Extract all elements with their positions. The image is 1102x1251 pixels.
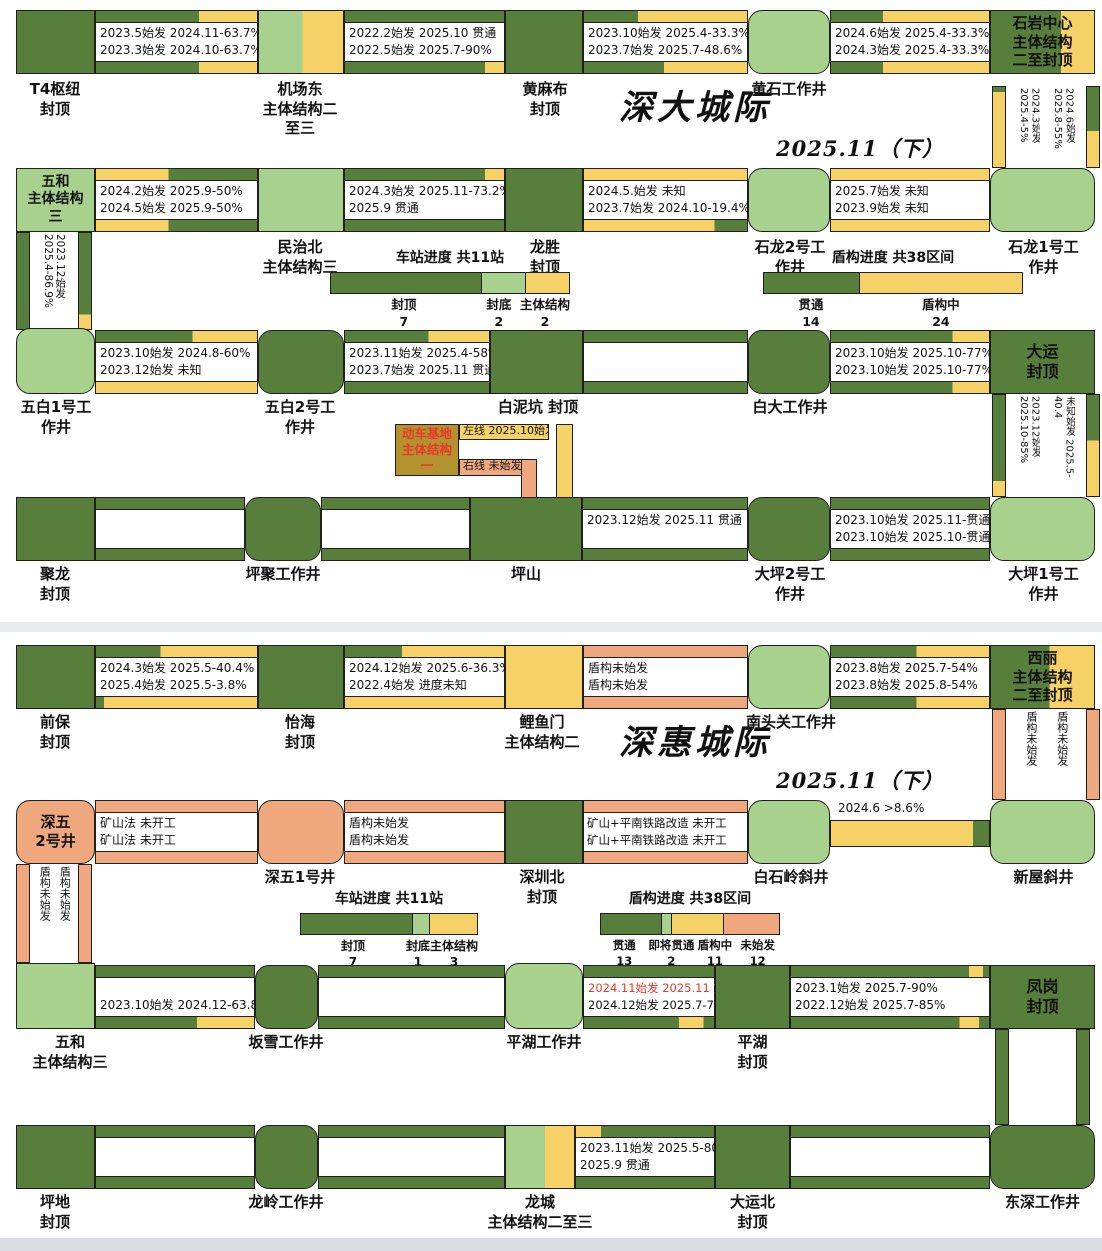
node-label-pingshan: 坪山 <box>466 565 586 585</box>
node-label-banxue: 坂雪工作井 <box>216 1033 356 1053</box>
segment-label-line: 2023.8始发 2025.7-54% <box>835 660 985 677</box>
legend-item-name: 盾构中 <box>698 938 733 954</box>
progress-bar <box>95 645 258 658</box>
segment-h3: 2023.11始发 2025.5-80%2025.9 贯通 <box>575 1125 715 1189</box>
progress-bar <box>583 696 748 709</box>
legend-swatch-through <box>601 914 661 934</box>
legend-item-count: 24 <box>932 314 949 331</box>
legend-sd-shield: 盾构进度 共38区间 贯通14 盾构中24 <box>763 247 1023 331</box>
progress-bar <box>344 696 505 709</box>
progress-bar <box>321 548 470 561</box>
segment-label-line: 2022.4始发 进度未知 <box>349 677 500 694</box>
segment-label-line: 2023.10始发 2025.10-77% <box>835 362 985 379</box>
progress-bar <box>344 851 505 864</box>
segment-c2: 2023.11始发 2025.4-58%2023.7始发 2025.11 贯通 <box>344 330 490 394</box>
segment-label-line: 2024.3始发 2025.5-40.4% <box>100 660 253 677</box>
legend-sh-station: 车站进度 共11站 封顶7 封底1 主体结构3 <box>300 888 478 970</box>
segment-d3: 2023.12始发 2025.11 贯通 <box>582 497 748 561</box>
node-label-baida: 白大工作井 <box>720 398 860 418</box>
progress-bar <box>16 864 30 963</box>
segment-c4: 2023.10始发 2025.10-77%2023.10始发 2025.10-7… <box>830 330 990 394</box>
segment-g3: 2024.11始发 2025.11 贯通2024.12始发 2025.7-70% <box>583 965 715 1029</box>
construction-progress-diagram: 2023.5始发 2024.11-63.7%2023.3始发 2024.10-6… <box>0 0 1102 1251</box>
segment-label-line: 2022.12始发 2025.7-85% <box>795 997 985 1014</box>
segment-label-line: 2023.8始发 2025.8-54% <box>835 677 985 694</box>
segment-label-line: 2024.6 >8.6% <box>830 800 990 817</box>
node-banxue-shaft <box>255 965 318 1029</box>
node-label-dongshen: 东深工作井 <box>980 1193 1102 1213</box>
node-baishiling-shaft <box>748 800 830 864</box>
segment-e4: 2023.8始发 2025.7-54%2023.8始发 2025.8-54% <box>830 645 990 709</box>
vertical-segment-v4: 盾构未始发 盾构未始发 <box>992 709 1100 800</box>
progress-bar <box>583 61 748 74</box>
node-label-pinghu-shaft: 平湖工作井 <box>454 1033 634 1053</box>
progress-bar <box>583 330 748 343</box>
segment-label-line: 未知始发 2025.5-40.4 <box>1052 394 1075 497</box>
legend-item-name: 未始发 <box>740 938 775 954</box>
legend-swatch-topped <box>331 273 481 293</box>
segment-label-line: 2024.11始发 2025.11 贯通 <box>588 980 710 997</box>
segment-b1: 2024.2始发 2025.9-50%2024.5始发 2025.9-50% <box>95 168 258 232</box>
segment-label-line: 盾构未始发 <box>588 660 743 677</box>
segment-label-line: 盾构未始发 <box>1024 709 1037 800</box>
line-date-shenhui: 2025.11（下） <box>755 765 965 795</box>
legend-item-count: 7 <box>400 314 409 331</box>
segment-label-line: 2024.3始发 2025.11-73.2% <box>349 183 500 200</box>
segment-b3: 2024.5.始发 未知2023.7始发 2024.10-19.4% <box>583 168 748 232</box>
progress-bar <box>583 168 748 181</box>
legend-item-name: 盾构中 <box>922 297 960 314</box>
node-minzhibei <box>258 168 344 232</box>
progress-bar <box>583 965 715 978</box>
node-julong <box>16 497 95 561</box>
legend-item-count: 14 <box>802 314 819 331</box>
progress-bar <box>583 381 748 394</box>
legend-item-name: 封底 <box>406 938 430 954</box>
line-title-shenhui: 深惠城际 <box>585 715 805 764</box>
node-pinghu-station <box>715 965 790 1029</box>
progress-bar <box>992 394 1006 497</box>
progress-bar <box>95 548 245 561</box>
node-dongshen-shaft <box>990 1125 1095 1189</box>
progress-bar <box>95 168 258 181</box>
progress-bar <box>1086 709 1100 800</box>
legend-item-name: 主体结构 <box>520 297 570 314</box>
legend-title: 盾构进度 共38区间 <box>763 247 1023 267</box>
segment-label-line: 2025.9 贯通 <box>349 200 500 217</box>
segment-label-line: 2023.10始发 2024.12-63.8% <box>100 997 250 1014</box>
legend-item-name: 贯通 <box>798 297 823 314</box>
progress-bar <box>95 1125 255 1138</box>
segment-g2 <box>318 965 505 1029</box>
node-label-pingdi: 坪地 封顶 <box>0 1193 110 1232</box>
segment-label-line: 2024.3始发 2025.4-33.3% <box>835 42 985 59</box>
progress-bar <box>344 330 490 343</box>
progress-bar <box>582 548 748 561</box>
segment-h4 <box>790 1125 990 1189</box>
segment-d4: 2023.10始发 2025.11-贯通2023.10始发 2025.10-贯通 <box>830 497 990 561</box>
progress-bar <box>95 61 258 74</box>
legend-title: 车站进度 共11站 <box>300 888 478 908</box>
segment-label-line: 盾构未始发 <box>349 832 500 849</box>
progress-bar <box>790 1176 990 1189</box>
segment-g4: 2023.1始发 2025.7-90%2022.12始发 2025.7-85% <box>790 965 990 1029</box>
node-pingshan <box>470 497 582 561</box>
legend-bar <box>763 272 1023 294</box>
progress-bar <box>575 1125 715 1138</box>
node-nantouguan-shaft <box>748 645 830 709</box>
segment-label-line: 2023.10始发 2025.10-贯通 <box>835 529 985 546</box>
node-huangshi-shaft <box>748 10 830 74</box>
segment-a2: 2022.2始发 2025.10 贯通2022.5始发 2025.7-90% <box>344 10 505 74</box>
progress-bar <box>344 381 490 394</box>
section-divider <box>0 622 1102 632</box>
segment-label-line: 2023.7始发 2025.7-48.6% <box>588 42 743 59</box>
progress-bar <box>318 965 505 978</box>
legend-bar <box>300 913 478 935</box>
progress-bar <box>992 709 1006 800</box>
node-label-t4: T4枢纽 封顶 <box>0 80 110 119</box>
legend-swatch-boring <box>859 273 1022 293</box>
segment-h2 <box>318 1125 505 1189</box>
legend-swatch-topped <box>301 914 412 934</box>
segment-label-line: 矿山+平南铁路改造 未开工 <box>587 815 744 832</box>
node-shilong2-shaft <box>748 168 830 232</box>
node-longcheng <box>505 1125 575 1189</box>
progress-bar <box>78 232 92 330</box>
segment-label-line: 盾构未始发 <box>58 864 71 963</box>
progress-bar <box>344 168 505 181</box>
progress-bar <box>830 548 990 561</box>
node-wubai1-shaft <box>16 328 95 394</box>
progress-bar <box>95 330 258 343</box>
progress-bar <box>95 851 258 864</box>
progress-bar <box>95 497 245 510</box>
node-label-pingju: 坪聚工作井 <box>213 565 353 585</box>
legend-sh-shield: 盾构进度 共38区间 贯通13 即将贯通2 盾构中11 未始发12 <box>600 888 780 969</box>
progress-bar <box>318 1016 505 1029</box>
node-pinghu-shaft <box>505 963 583 1029</box>
segment-label-line: 2025.9 贯通 <box>580 1157 710 1174</box>
segment-label-line: 2025.4始发 2025.5-3.8% <box>100 677 253 694</box>
segment-label-line: 2023.1始发 2025.7-90% <box>795 980 985 997</box>
node-label-xinwu: 新屋斜井 <box>985 868 1102 888</box>
segment-label-line: 2024.5始发 2025.9-50% <box>100 200 253 217</box>
segment-d2 <box>321 497 470 561</box>
progress-bar <box>344 10 505 23</box>
segment-label-line: 2023.10始发 2025.10-77% <box>835 345 985 362</box>
progress-bar <box>95 219 258 232</box>
node-label-julong: 聚龙 封顶 <box>0 565 110 604</box>
segment-label-line: 2023.9始发 未知 <box>835 200 985 217</box>
progress-bar <box>95 1016 255 1029</box>
legend-swatch-main-structure <box>429 914 477 934</box>
segment-e2: 2024.12始发 2025.6-36.3%2022.4始发 进度未知 <box>344 645 505 709</box>
segment-label-line: 矿山法 未开工 <box>100 832 253 849</box>
node-fenggang: 凤岗 封顶 <box>990 965 1095 1029</box>
segment-h1 <box>95 1125 255 1189</box>
node-label-qianbao: 前保 封顶 <box>0 713 110 752</box>
segment-c1: 2023.10始发 2024.8-60%2023.12始发 未知 <box>95 330 258 394</box>
progress-bar <box>830 61 990 74</box>
progress-bar <box>344 645 505 658</box>
progress-bar <box>583 800 748 813</box>
segment-label-line: 2024.2始发 2025.9-50% <box>100 183 253 200</box>
segment-e3: 盾构未始发盾构未始发 <box>583 645 748 709</box>
progress-bar <box>95 10 258 23</box>
progress-bar <box>992 86 1006 168</box>
segment-label-line: 2023.10始发 2025.4-33.3% <box>588 25 743 42</box>
node-label-wubai2: 五白2号工 作井 <box>230 398 370 437</box>
node-bainikeng <box>490 330 583 394</box>
node-huangmabu <box>505 10 583 74</box>
segment-a1: 2023.5始发 2024.11-63.7%2023.3始发 2024.10-6… <box>95 10 258 74</box>
segment-f3: 矿山+平南铁路改造 未开工矿山+平南铁路改造 未开工 <box>583 800 748 864</box>
legend-item-name: 主体结构 <box>430 938 478 954</box>
segment-label-line: 2024.6始发 2025.4-33.3% <box>835 25 985 42</box>
progress-bar <box>583 851 748 864</box>
progress-bar <box>95 381 258 394</box>
node-yihai <box>258 645 344 709</box>
legend-title: 盾构进度 共38区间 <box>600 888 780 908</box>
progress-bar <box>830 381 990 394</box>
progress-bar <box>830 497 990 510</box>
node-label-longling: 龙岭工作井 <box>216 1193 356 1213</box>
segment-label-line: 2024.5.始发 未知 <box>588 183 743 200</box>
progress-bar <box>95 1176 255 1189</box>
segment-label-line: 2023.3始发 2024.10-63.7% <box>100 42 253 59</box>
segment-label-line: 盾构未始发 <box>1055 709 1068 800</box>
legend-swatch-main-structure <box>525 273 569 293</box>
node-label-wuhe-sh: 五和 主体结构三 <box>0 1033 140 1072</box>
segment-label-line: 矿山法 未开工 <box>100 815 253 832</box>
node-pingdi <box>16 1125 95 1189</box>
progress-bar <box>95 965 255 978</box>
legend-swatch-bottom-sealed <box>412 914 429 934</box>
node-shilong1-shaft <box>990 168 1095 232</box>
line-date-shenda: 2025.11（下） <box>755 133 965 163</box>
progress-bar <box>790 1125 990 1138</box>
node-label-longcheng: 龙城 主体结构二至三 <box>435 1193 645 1232</box>
legend-item-name: 即将贯通 <box>648 938 694 954</box>
node-wubai2-shaft <box>258 330 344 394</box>
progress-bar <box>95 800 258 813</box>
progress-bar <box>583 1016 715 1029</box>
depot-box: 动车基地 主体结构一 <box>395 424 459 476</box>
legend-item-name: 贯通 <box>613 938 636 954</box>
progress-bar <box>344 61 505 74</box>
segment-b2: 2024.3始发 2025.11-73.2%2025.9 贯通 <box>344 168 505 232</box>
vertical-segment-v5: 盾构未始发 盾构未始发 <box>16 864 92 963</box>
progress-bar <box>1076 1029 1090 1125</box>
node-wuhe-sh <box>16 963 95 1029</box>
segment-label-line: 盾构未始发 <box>38 864 51 963</box>
segment-label-line: 2022.2始发 2025.10 贯通 <box>349 25 500 42</box>
segment-label-line: 2023.12始发 未知 <box>100 362 253 379</box>
node-daping2-shaft <box>748 497 830 561</box>
segment-c3 <box>583 330 748 394</box>
segment-label-line: 2023.11始发 2025.4-58% <box>349 345 485 362</box>
segment-label-line: 2023.5始发 2024.11-63.7% <box>100 25 253 42</box>
segment-label-line: 2023.10始发 2024.8-60% <box>100 345 253 362</box>
node-liyumen <box>505 645 583 709</box>
segment-label-line: 2023.12始发 2025.4-86.9% <box>42 232 66 330</box>
progress-bar <box>318 1176 505 1189</box>
segment-label-line: 2024.12始发 2025.6-36.3% <box>349 660 500 677</box>
segment-label-line: 2023.12始发 2025.10-85% <box>1017 394 1040 497</box>
progress-bar <box>344 219 505 232</box>
segment-a4: 2024.6始发 2025.4-33.3%2024.3始发 2025.4-33.… <box>830 10 990 74</box>
node-label-baishiling: 白石岭斜井 <box>726 868 856 888</box>
node-baida-shaft <box>748 330 830 394</box>
vertical-segment-v3: 2023.12始发 2025.10-85% 未知始发 2025.5-40.4 <box>992 394 1100 497</box>
node-label-jichangdong: 机场东 主体结构二 至三 <box>230 80 370 139</box>
node-daping1-shaft <box>990 497 1095 561</box>
node-label-yihai: 怡海 封顶 <box>230 713 370 752</box>
node-label-daping2: 大坪2号工 作井 <box>712 565 868 604</box>
legend-sd-station: 车站进度 共11站 封顶7 封底2 主体结构2 <box>330 247 570 331</box>
node-xili: 西丽 主体结构 二至封顶 <box>990 645 1095 709</box>
legend-swatch-about-through <box>661 914 671 934</box>
node-longling-shaft <box>255 1125 318 1189</box>
segment-label-line: 2023.7始发 2024.10-19.4% <box>588 200 743 217</box>
legend-item-name: 封底 <box>486 297 511 314</box>
segment-b4: 2025.7始发 未知2023.9始发 未知 <box>830 168 990 232</box>
node-label-pinghu: 平湖 封顶 <box>680 1033 825 1072</box>
segment-d1 <box>95 497 245 561</box>
progress-bar <box>830 820 990 847</box>
progress-bar <box>583 219 748 232</box>
node-shenwu1-shaft <box>258 800 344 864</box>
segment-f4: 2024.6 >8.6% <box>830 800 990 864</box>
progress-bar <box>582 497 748 510</box>
progress-bar <box>344 800 505 813</box>
progress-bar <box>790 1016 990 1029</box>
node-dayun: 大运 封顶 <box>990 330 1095 394</box>
vertical-segment-v6 <box>990 1029 1095 1125</box>
progress-bar <box>790 965 990 978</box>
segment-f2: 盾构未始发盾构未始发 <box>344 800 505 864</box>
legend-swatch-bottom-sealed <box>481 273 525 293</box>
progress-bar <box>583 645 748 658</box>
node-label-bainikeng: 白泥坑 封顶 <box>458 398 618 418</box>
legend-title: 车站进度 共11站 <box>330 247 570 267</box>
segment-label-line: 2024.3始发 2025.4-5% <box>1017 86 1040 168</box>
node-dayunbei <box>715 1125 790 1189</box>
progress-bar <box>318 1125 505 1138</box>
segment-label-line: 2025.7始发 未知 <box>835 183 985 200</box>
depot-left-line: 左线 2025.10始发 <box>459 424 549 440</box>
progress-bar <box>321 497 470 510</box>
segment-label-line: 盾构未始发 <box>349 815 500 832</box>
node-t4-hub <box>16 10 95 74</box>
segment-f1: 矿山法 未开工矿山法 未开工 <box>95 800 258 864</box>
segment-label-line: 2023.10始发 2025.11-贯通 <box>835 512 985 529</box>
vertical-segment-v1: 2024.3始发 2025.4-5% 2024.6始发 2025.8-55% <box>992 86 1100 168</box>
footer-band <box>0 1238 1102 1251</box>
vertical-segment-v2: 2023.12始发 2025.4-86.9% <box>16 232 92 330</box>
node-jichangdong <box>258 10 344 74</box>
node-wuhe-sd: 五和 主体结构 三 <box>16 168 95 232</box>
node-label-wubai1: 五白1号工 作井 <box>0 398 112 437</box>
node-label-daping1: 大坪1号工 作井 <box>985 565 1102 604</box>
depot-right-line: 右线 未始发 <box>459 459 525 476</box>
progress-bar <box>95 696 258 709</box>
segment-g1: 2023.10始发 2024.12-63.8% <box>95 965 255 1029</box>
legend-swatch-boring <box>671 914 723 934</box>
segment-label-line: 2023.7始发 2025.11 贯通 <box>349 362 485 379</box>
node-longsheng <box>505 168 583 232</box>
node-pingju-shaft <box>245 497 321 561</box>
node-label-dayunbei: 大运北 封顶 <box>680 1193 825 1232</box>
segment-label-line: 2024.12始发 2025.7-70% <box>588 997 710 1014</box>
legend-item-name: 封顶 <box>391 297 416 314</box>
progress-bar <box>995 1029 1009 1125</box>
segment-label-line: 2022.5始发 2025.7-90% <box>349 42 500 59</box>
legend-bar <box>600 913 780 935</box>
legend-item-name: 封顶 <box>341 938 365 954</box>
depot-left-line-riser <box>556 424 573 498</box>
progress-bar <box>830 696 990 709</box>
legend-item-count: 2 <box>541 314 550 331</box>
progress-bar <box>78 864 92 963</box>
progress-bar <box>830 645 990 658</box>
segment-a3: 2023.10始发 2025.4-33.3%2023.7始发 2025.7-48… <box>583 10 748 74</box>
node-shenwu2-shaft: 深五 2号井 <box>16 800 95 864</box>
segment-e1: 2024.3始发 2025.5-40.4%2025.4始发 2025.5-3.8… <box>95 645 258 709</box>
progress-bar <box>16 232 30 330</box>
progress-bar <box>575 1176 715 1189</box>
depot-right-line-riser <box>521 459 537 498</box>
node-label-shenwu1: 深五1号井 <box>230 868 370 888</box>
node-qianbao <box>16 645 95 709</box>
legend-swatch-not-launched <box>723 914 779 934</box>
segment-label-line: 2024.6始发 2025.8-55% <box>1052 86 1075 168</box>
progress-bar <box>830 219 990 232</box>
progress-bar <box>830 168 990 181</box>
legend-item-count: 2 <box>495 314 504 331</box>
node-shenzhenbei <box>505 800 583 864</box>
line-title-shenda: 深大城际 <box>585 80 805 129</box>
segment-label-line: 矿山+平南铁路改造 未开工 <box>587 832 744 849</box>
segment-label-line: 盾构未始发 <box>588 677 743 694</box>
legend-swatch-through <box>764 273 859 293</box>
progress-bar <box>583 10 748 23</box>
node-shiyan-center: 石岩中心 主体结构 二至封顶 <box>990 10 1095 74</box>
segment-label-line: 2023.11始发 2025.5-80% <box>580 1140 710 1157</box>
progress-bar <box>830 330 990 343</box>
progress-bar <box>830 10 990 23</box>
legend-bar <box>330 272 570 294</box>
segment-label-line: 2023.12始发 2025.11 贯通 <box>587 512 743 529</box>
progress-bar <box>1086 86 1100 168</box>
progress-bar <box>1086 394 1100 497</box>
node-xinwu-shaft <box>990 800 1095 864</box>
